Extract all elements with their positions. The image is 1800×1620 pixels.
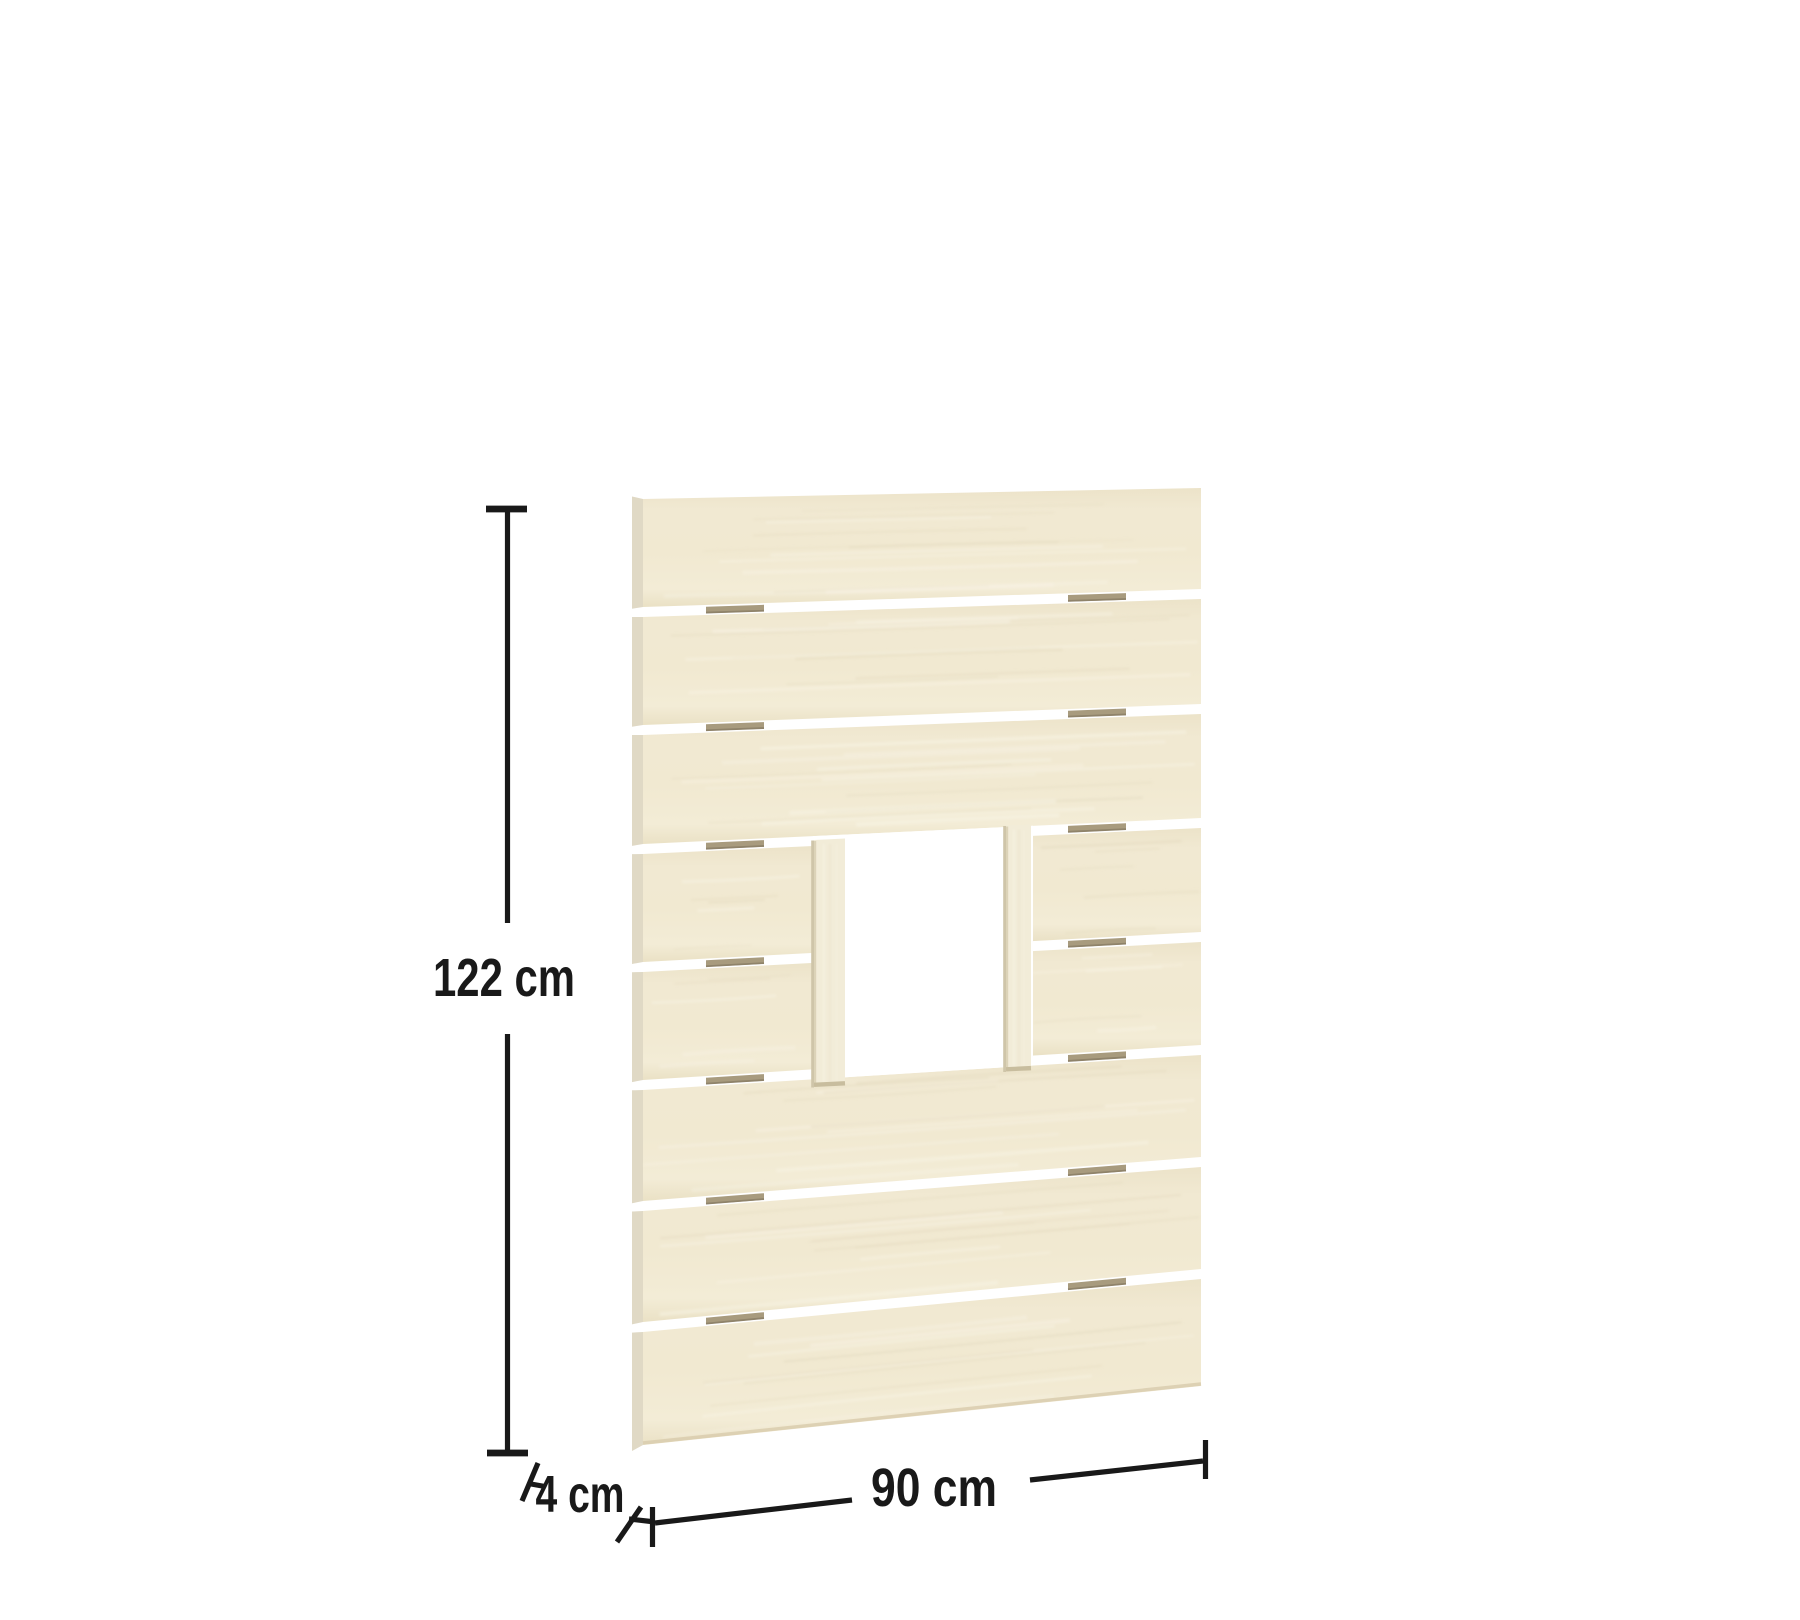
- svg-text:90 cm: 90 cm: [871, 1458, 997, 1518]
- svg-text:122 cm: 122 cm: [433, 948, 575, 1008]
- svg-text:4 cm: 4 cm: [536, 1466, 625, 1524]
